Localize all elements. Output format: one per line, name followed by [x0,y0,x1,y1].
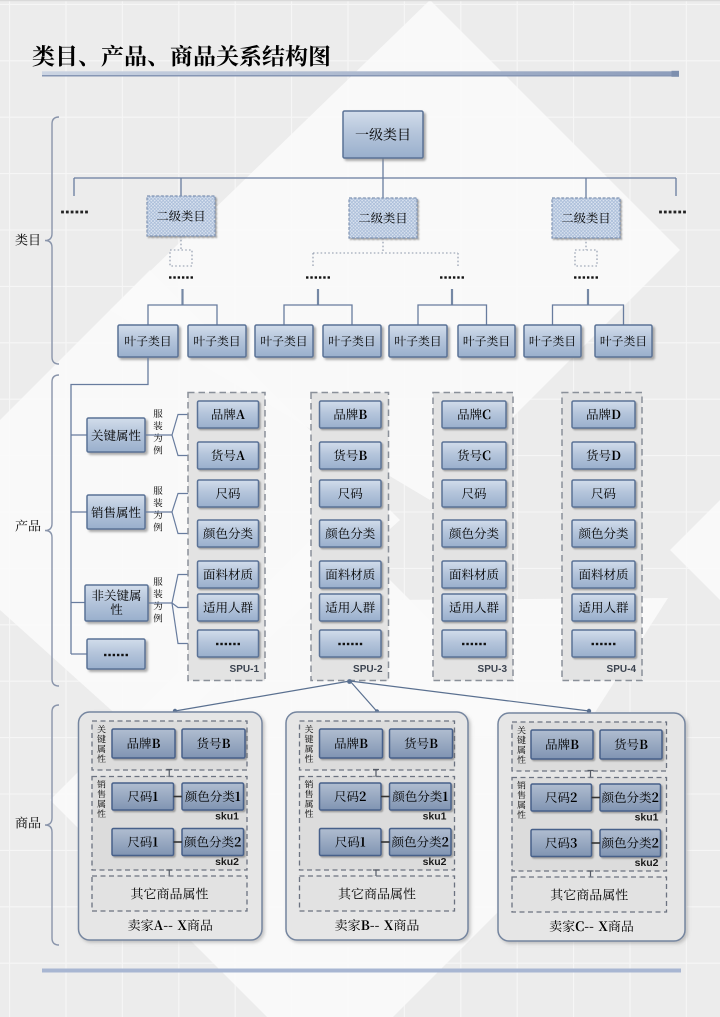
svg-text:SPU-1: SPU-1 [230,664,260,675]
svg-text:sku1: sku1 [215,811,239,823]
svg-text:sku2: sku2 [635,857,659,869]
svg-text:sku2: sku2 [423,856,447,868]
svg-text:SPU-3: SPU-3 [478,664,508,675]
svg-text:SPU-2: SPU-2 [353,664,383,675]
svg-text:SPU-4: SPU-4 [607,664,637,675]
svg-text:sku1: sku1 [423,811,447,823]
svg-text:sku2: sku2 [215,856,239,868]
svg-text:sku1: sku1 [635,812,659,824]
